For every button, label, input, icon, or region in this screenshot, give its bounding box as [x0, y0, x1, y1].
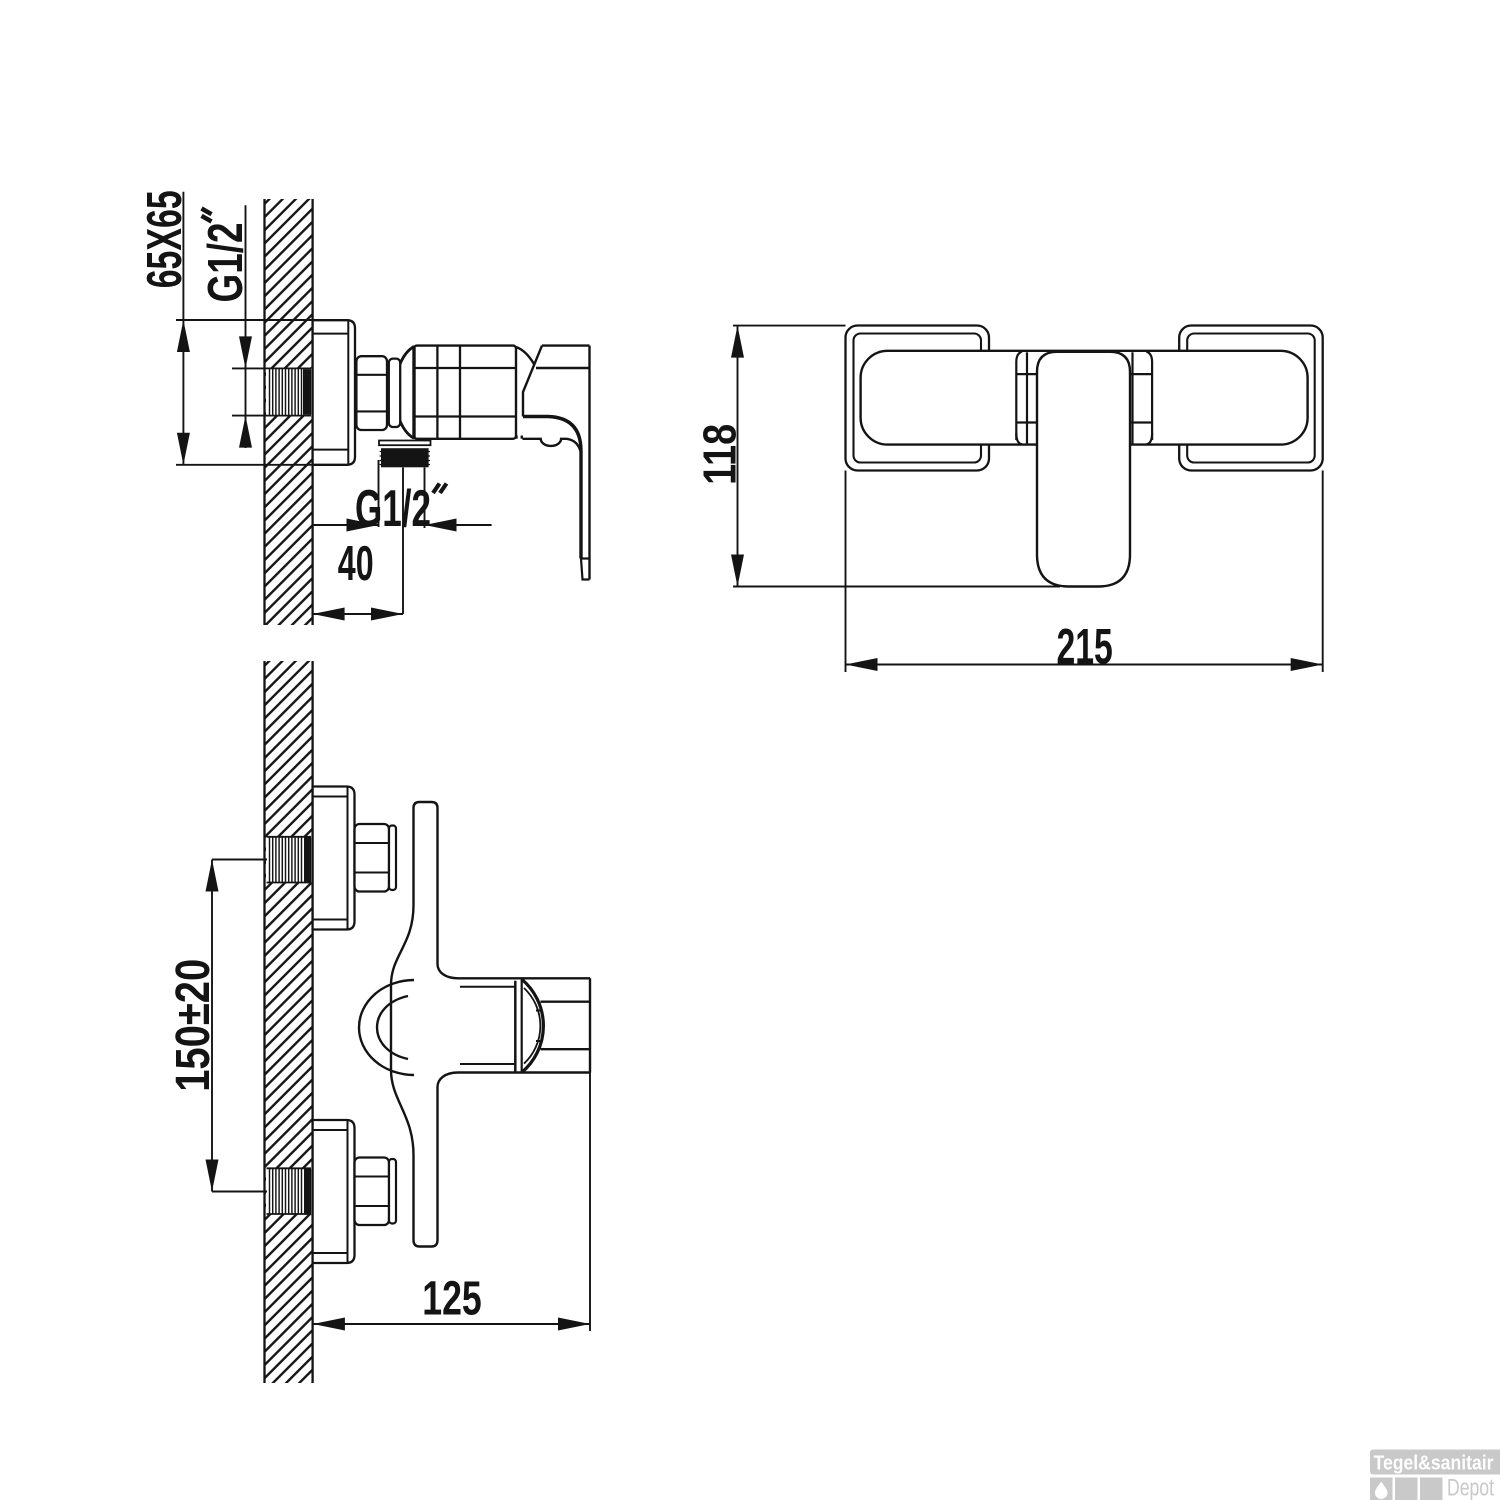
svg-text:40: 40: [338, 537, 374, 591]
svg-text:150±20: 150±20: [167, 959, 220, 1092]
svg-text:118: 118: [694, 424, 746, 485]
svg-text:65X65: 65X65: [138, 190, 192, 288]
svg-text:G1/2: G1/2: [199, 222, 253, 302]
svg-text:Tegel&sanitair: Tegel&sanitair: [1374, 1452, 1494, 1475]
svg-text:G1/2: G1/2: [355, 480, 431, 538]
svg-text:Depot: Depot: [1447, 1475, 1494, 1500]
svg-text:125: 125: [422, 1273, 482, 1326]
svg-text:215: 215: [1056, 619, 1112, 675]
